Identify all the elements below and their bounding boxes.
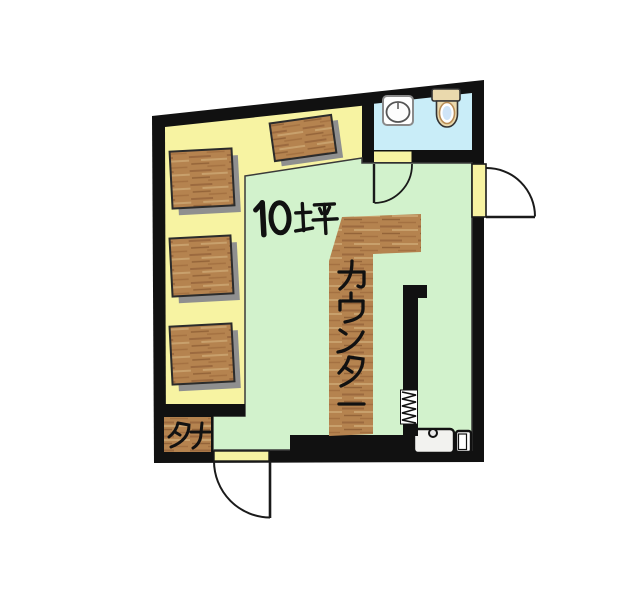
tilted-table: [270, 114, 343, 167]
bathroom-door-threshold: [374, 151, 413, 163]
door-threshold: [214, 451, 269, 461]
shelf-wall-stub: [158, 404, 245, 417]
accordion-screen-icon: [401, 390, 418, 424]
floor-plan-canvas: タナ: [0, 0, 624, 600]
shelf: タナ: [163, 416, 216, 453]
floor-plan-page: タナ: [0, 0, 624, 600]
entrance-door-bottom: [214, 451, 270, 518]
door-threshold: [472, 164, 486, 217]
kitchen-sink-icon: [414, 429, 471, 453]
square-table: [170, 235, 240, 303]
square-table: [170, 148, 241, 215]
bathroom-sink-icon: [383, 96, 413, 125]
entrance-door-right: [472, 164, 535, 217]
square-table: [170, 323, 241, 391]
bathroom-left-wall: [362, 101, 374, 163]
